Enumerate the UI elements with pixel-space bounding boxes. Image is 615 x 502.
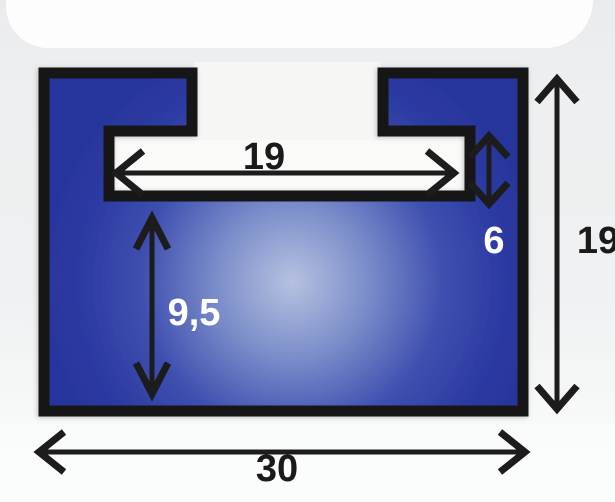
dim-label-slot-depth: 6 (483, 220, 504, 262)
diagram-canvas: 19 6 19 9,5 30 (0, 0, 615, 502)
dim-arrow-overall-height (537, 79, 577, 409)
dim-label-slot-width: 19 (243, 136, 285, 178)
dim-label-overall-width: 30 (256, 448, 298, 490)
slot-cavity (104, 136, 472, 194)
dim-label-overall-height: 19 (577, 220, 615, 262)
slot-opening (194, 62, 381, 140)
dim-label-base-height: 9,5 (168, 292, 221, 334)
profile-drawing: 19 6 19 9,5 30 (0, 0, 615, 502)
